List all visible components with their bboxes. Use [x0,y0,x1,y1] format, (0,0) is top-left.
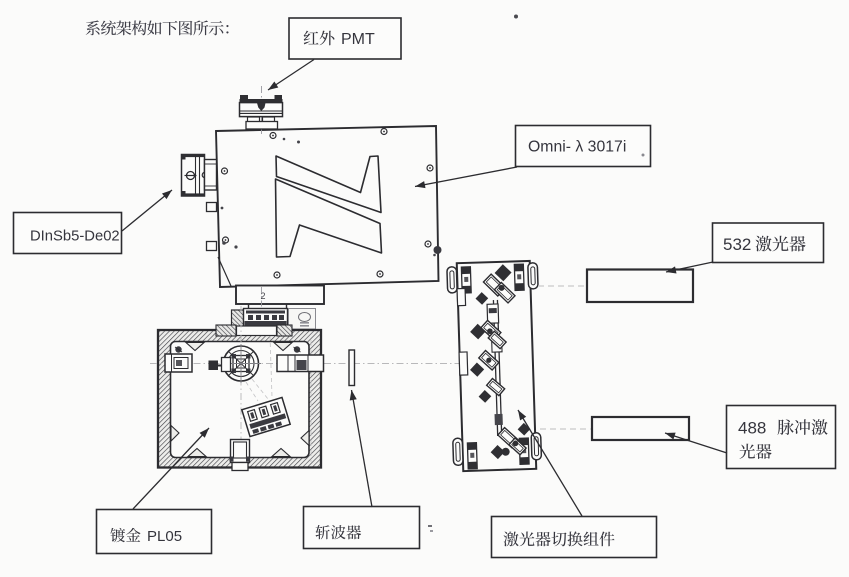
svg-text:488: 488 [738,419,766,438]
svg-text:532: 532 [723,235,751,254]
svg-text:DInSb5-De02: DInSb5-De02 [30,229,120,245]
svg-text:PMT: PMT [341,31,375,48]
svg-text:PL05: PL05 [147,528,182,545]
svg-text:Omni- λ 3017i: Omni- λ 3017i [528,139,626,156]
